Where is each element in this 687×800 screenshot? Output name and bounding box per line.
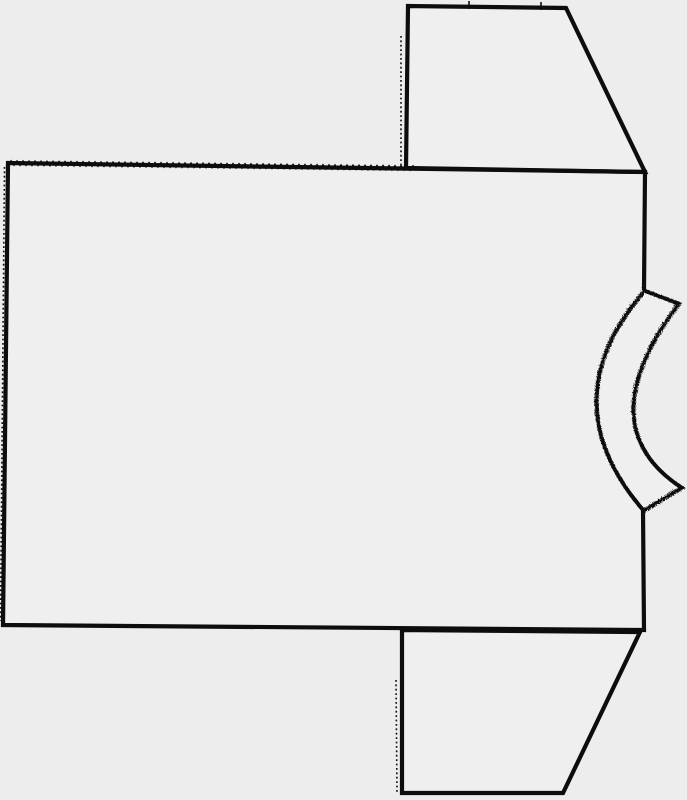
pattern-drawing-canvas <box>0 0 687 800</box>
bottom-sleeve-dotted-edge <box>396 680 397 792</box>
top-sleeve-panel <box>406 6 645 172</box>
sewing-pattern-sheet <box>0 0 687 800</box>
body-panel-fill <box>3 163 645 630</box>
bottom-sleeve-panel <box>402 630 640 793</box>
